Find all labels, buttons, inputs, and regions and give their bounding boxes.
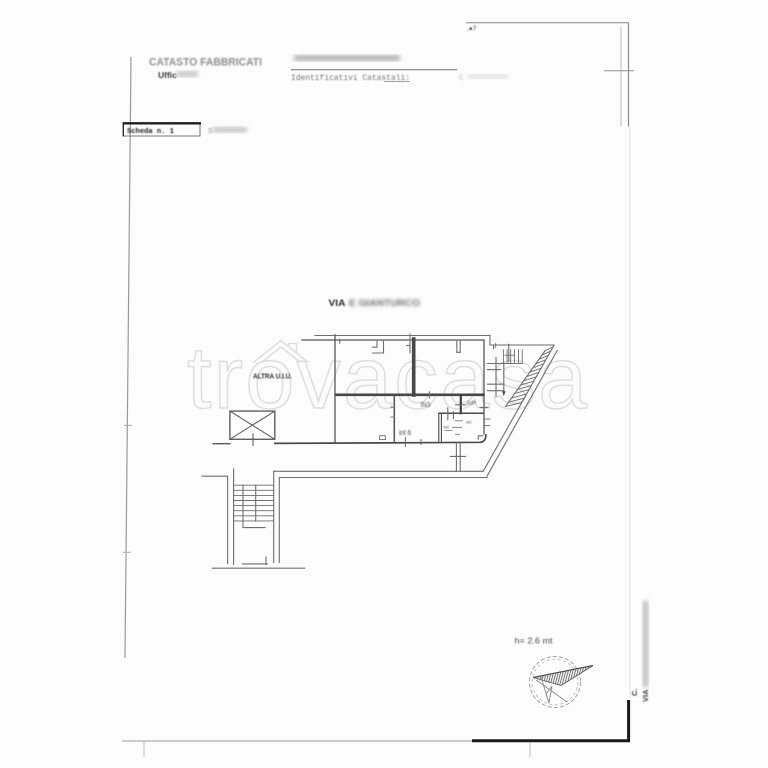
- svg-text:wc: wc: [466, 420, 472, 425]
- svg-text:C: C: [459, 75, 464, 83]
- svg-text:RIP: RIP: [467, 401, 477, 407]
- svg-text:Scheda n. 1: Scheda n. 1: [127, 128, 174, 136]
- svg-text:IN3: IN3: [421, 400, 431, 409]
- svg-text:trovacasa: trovacasa: [187, 328, 589, 427]
- svg-text:h= 2.6 mt: h= 2.6 mt: [515, 637, 554, 646]
- svg-text:CATASTO FABBRICATI: CATASTO FABBRICATI: [149, 57, 262, 69]
- svg-text:Uffic: Uffic: [158, 70, 177, 80]
- svg-text:S: S: [208, 128, 213, 136]
- svg-text:wc: wc: [444, 425, 450, 430]
- svg-text:E GIANTURCO: E GIANTURCO: [349, 298, 420, 309]
- svg-text:VIA: VIA: [329, 298, 346, 309]
- svg-text:int 6: int 6: [399, 430, 411, 437]
- svg-text:VIA: VIA: [641, 689, 650, 702]
- svg-text:,●7: ,●7: [467, 26, 477, 33]
- svg-text:ALTRA U.I.U.: ALTRA U.I.U.: [253, 372, 292, 381]
- svg-text:C.: C.: [630, 689, 639, 697]
